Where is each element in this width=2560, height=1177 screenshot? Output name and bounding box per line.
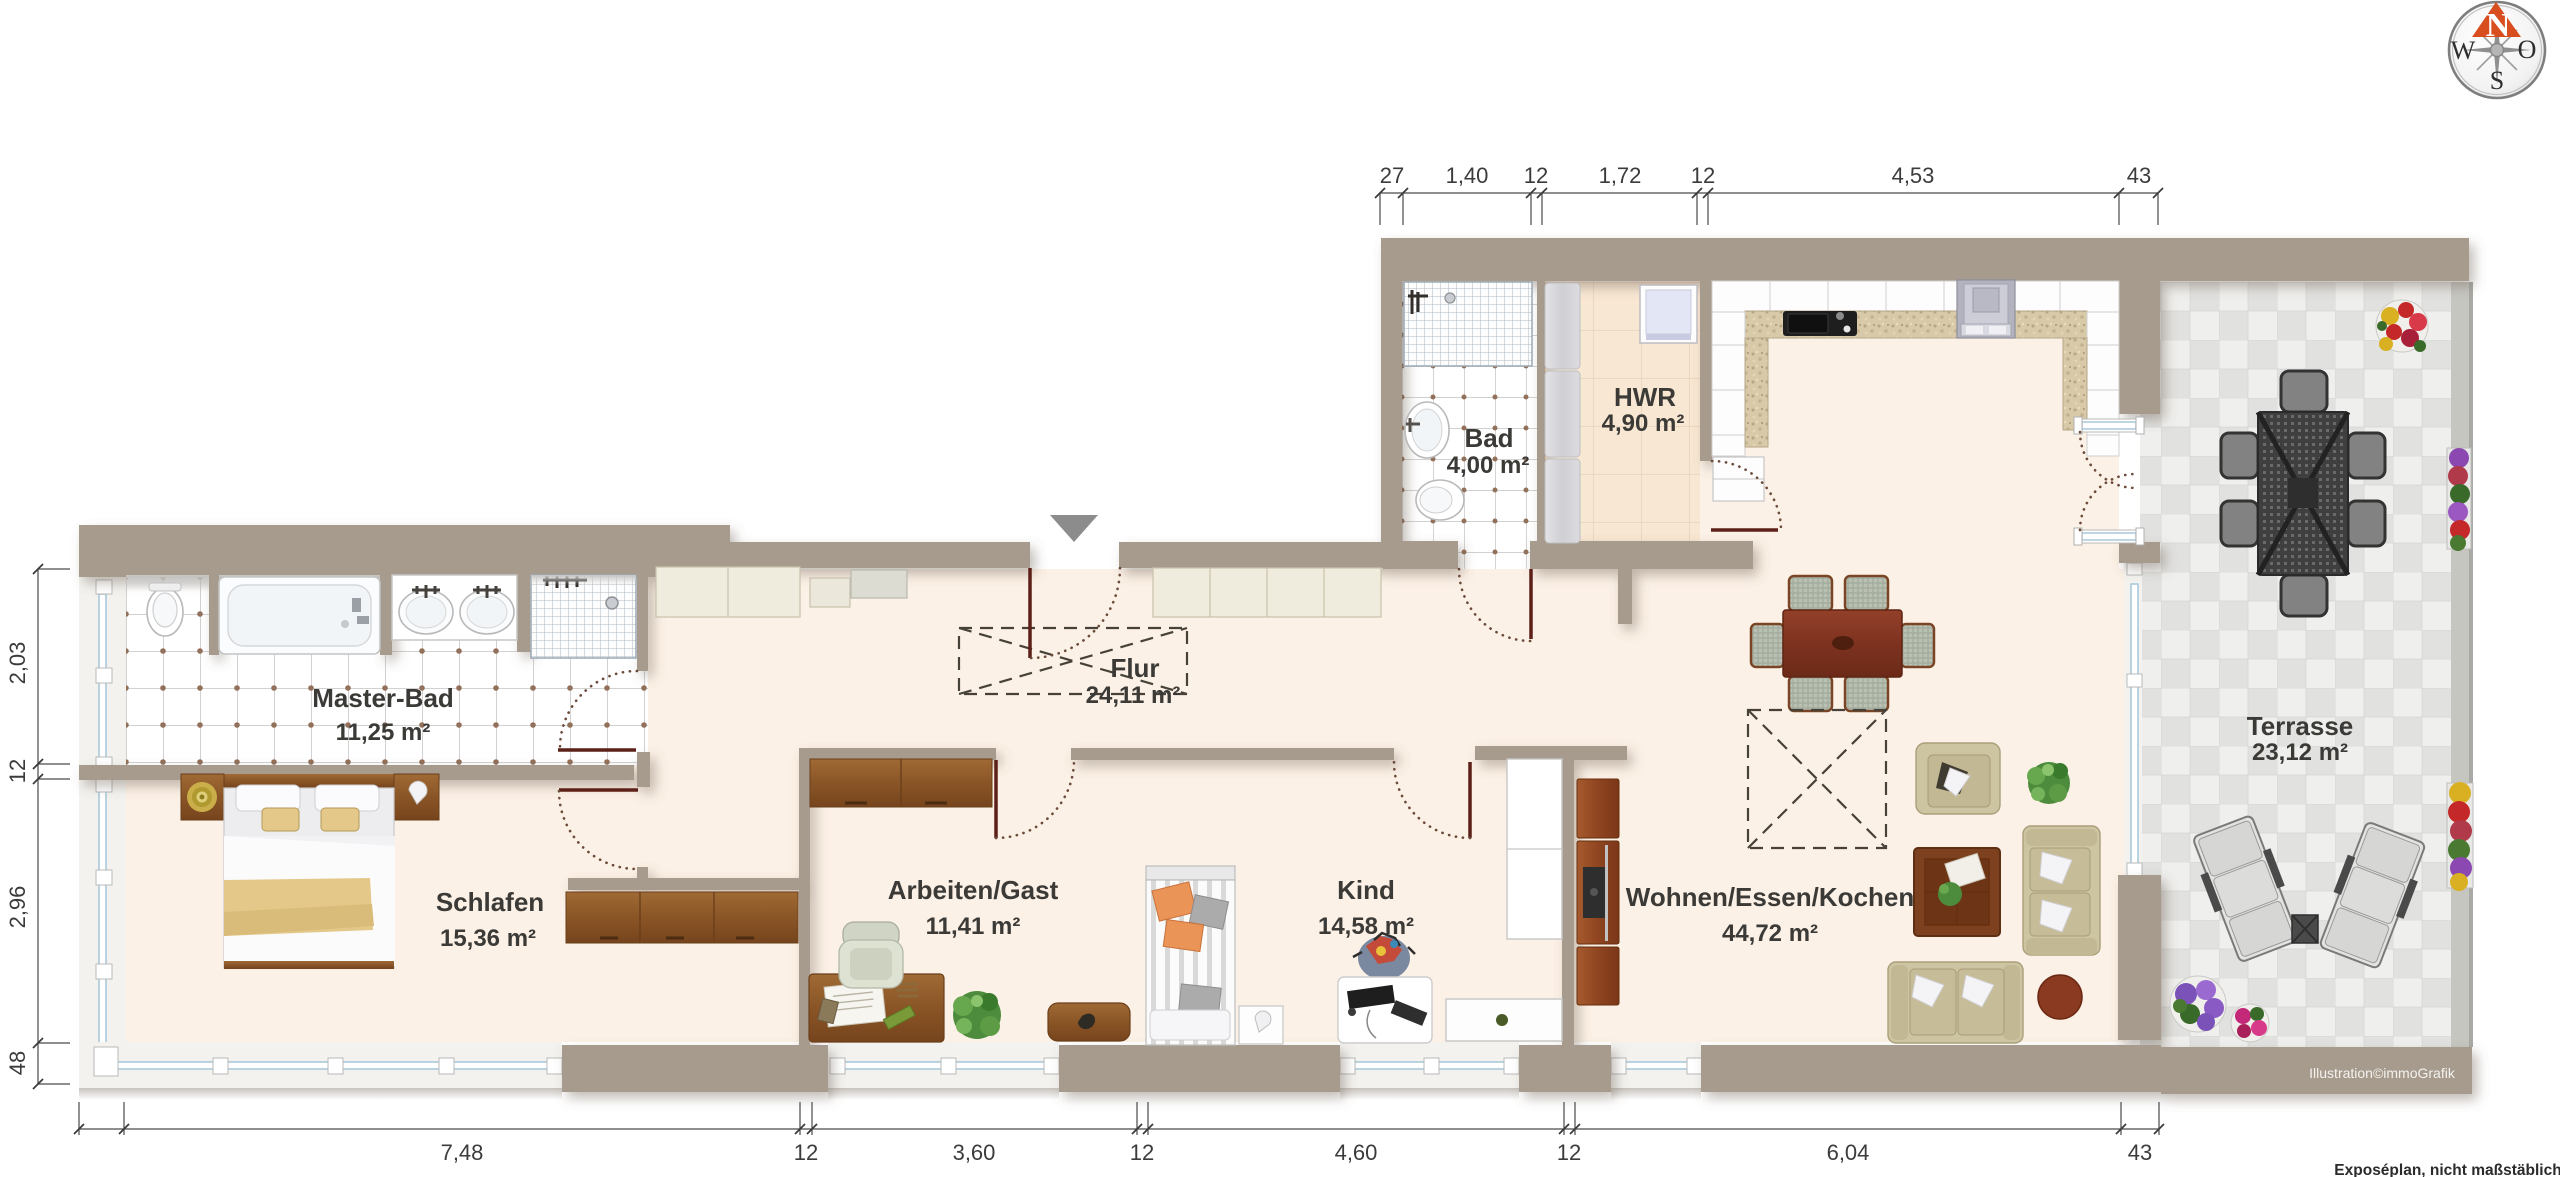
svg-text:1,40: 1,40	[1446, 163, 1489, 188]
svg-text:24,11 m²: 24,11 m²	[1086, 682, 1181, 709]
svg-text:1,72: 1,72	[1599, 163, 1642, 188]
svg-text:2,96: 2,96	[5, 886, 30, 929]
svg-text:Arbeiten/Gast: Arbeiten/Gast	[888, 875, 1059, 905]
svg-text:Illustration©immoGrafik: Illustration©immoGrafik	[2309, 1065, 2456, 1081]
svg-text:4,90 m²: 4,90 m²	[1602, 410, 1685, 437]
svg-text:3,60: 3,60	[953, 1140, 996, 1165]
svg-text:4,00 m²: 4,00 m²	[1447, 452, 1530, 479]
svg-text:15,36 m²: 15,36 m²	[440, 925, 536, 952]
svg-text:W: W	[2451, 36, 2476, 65]
svg-text:7,48: 7,48	[441, 1140, 484, 1165]
svg-text:12: 12	[1524, 163, 1548, 188]
svg-text:27: 27	[1380, 163, 1404, 188]
svg-text:Master-Bad: Master-Bad	[312, 683, 454, 713]
svg-text:12: 12	[1691, 163, 1715, 188]
svg-text:48: 48	[5, 1051, 30, 1075]
svg-text:6,04: 6,04	[1827, 1140, 1870, 1165]
svg-text:N: N	[2486, 7, 2511, 44]
svg-text:12: 12	[1130, 1140, 1154, 1165]
svg-text:44,72 m²: 44,72 m²	[1722, 920, 1818, 947]
svg-text:43: 43	[2128, 1140, 2152, 1165]
svg-text:12: 12	[794, 1140, 818, 1165]
svg-text:12: 12	[1557, 1140, 1581, 1165]
svg-text:14,58 m²: 14,58 m²	[1318, 913, 1414, 940]
svg-text:Wohnen/Essen/Kochen: Wohnen/Essen/Kochen	[1626, 882, 1914, 912]
svg-text:43: 43	[2127, 163, 2151, 188]
svg-text:12: 12	[5, 759, 30, 783]
svg-text:Schlafen: Schlafen	[436, 887, 544, 917]
svg-text:Bad: Bad	[1464, 423, 1513, 453]
svg-text:Flur: Flur	[1110, 653, 1159, 683]
svg-text:4,60: 4,60	[1335, 1140, 1378, 1165]
svg-text:2,03: 2,03	[5, 642, 30, 685]
svg-text:11,41 m²: 11,41 m²	[926, 913, 1021, 940]
svg-text:11,25 m²: 11,25 m²	[336, 719, 431, 746]
svg-text:S: S	[2490, 66, 2504, 95]
svg-text:Terrasse: Terrasse	[2247, 711, 2354, 741]
svg-text:O: O	[2518, 35, 2537, 64]
svg-text:Kind: Kind	[1337, 875, 1395, 905]
svg-text:Exposéplan, nicht maßstäblich: Exposéplan, nicht maßstäblich	[2334, 1162, 2560, 1177]
svg-text:23,12 m²: 23,12 m²	[2252, 739, 2348, 766]
svg-text:4,53: 4,53	[1892, 163, 1935, 188]
svg-text:HWR: HWR	[1614, 382, 1676, 412]
